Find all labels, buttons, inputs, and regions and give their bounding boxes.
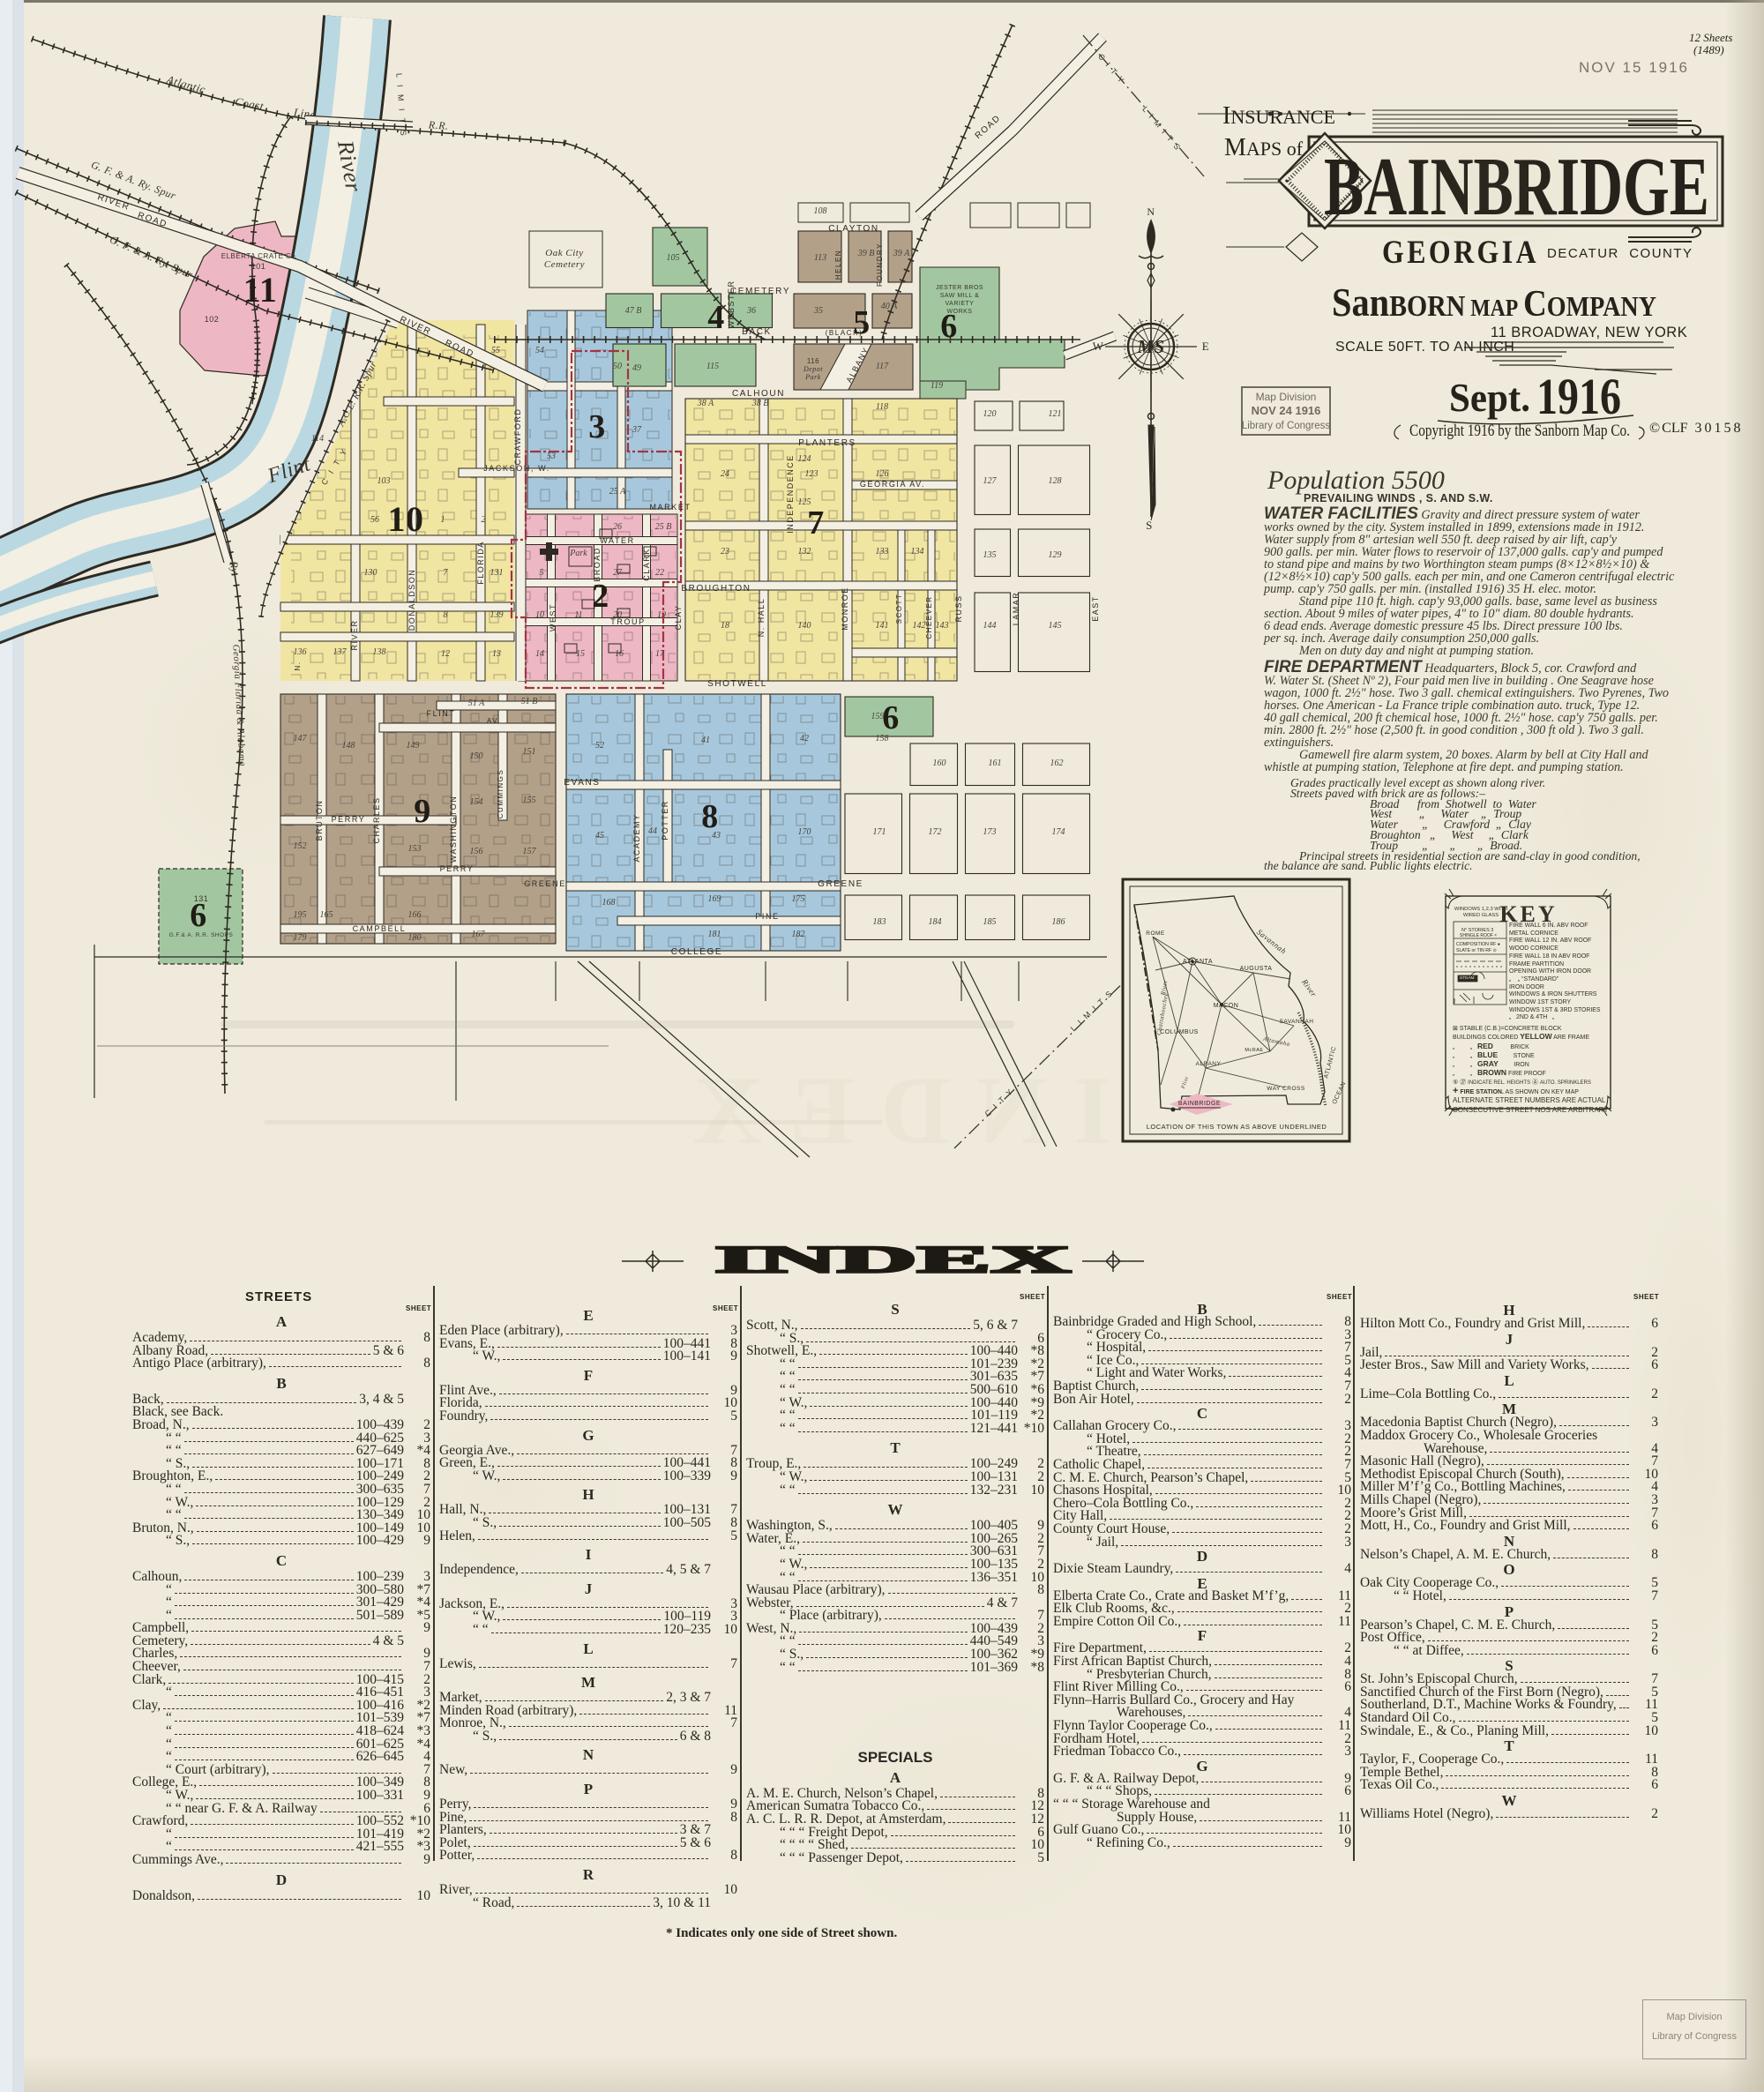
svg-text:7: 7 (807, 504, 825, 542)
svg-text:WAY CROSS: WAY CROSS (1267, 1086, 1305, 1092)
svg-text:185: 185 (983, 917, 997, 927)
svg-text:Library of Congress: Library of Congress (1242, 421, 1331, 431)
svg-text:26: 26 (613, 522, 622, 532)
svg-text:173: 173 (983, 827, 997, 837)
svg-text:27: 27 (613, 568, 623, 578)
svg-text:10: 10 (388, 499, 424, 539)
svg-text:149: 149 (407, 741, 420, 751)
svg-text:Copyright 1916 by the Sanborn: Copyright 1916 by the Sanborn Map Co. (1409, 422, 1630, 440)
svg-text:180: 180 (408, 933, 422, 943)
svg-text:135: 135 (983, 550, 997, 560)
svg-text:155: 155 (523, 796, 536, 805)
svg-text:138: 138 (373, 647, 386, 657)
svg-text:23: 23 (721, 547, 729, 557)
svg-text:MONROE: MONROE (841, 587, 849, 631)
svg-text:CRAWFORD: CRAWFORD (513, 408, 522, 466)
svg-text:VARIETY: VARIETY (946, 301, 975, 307)
svg-text:175: 175 (792, 894, 805, 904)
svg-text:2: 2 (592, 578, 609, 615)
svg-text:MAPS of: MAPS of (1224, 134, 1304, 161)
svg-text:PERRY: PERRY (440, 864, 475, 873)
svg-text:116: 116 (807, 357, 819, 365)
svg-text:C I T Y: C I T Y (1096, 52, 1126, 86)
svg-text:24: 24 (721, 469, 729, 479)
svg-text:5: 5 (853, 304, 871, 341)
svg-text:118: 118 (876, 402, 888, 412)
svg-text:102: 102 (205, 315, 220, 324)
svg-text:131: 131 (490, 568, 504, 578)
svg-text:105: 105 (667, 253, 680, 263)
svg-text:25 A: 25 A (609, 487, 626, 497)
svg-text:Depot: Depot (803, 365, 823, 373)
svg-text:166: 166 (408, 910, 422, 920)
svg-text:123: 123 (805, 469, 818, 479)
svg-text:Cemetery: Cemetery (544, 259, 585, 270)
svg-text:11: 11 (243, 270, 278, 310)
svg-text:SHOTWELL: SHOTWELL (707, 679, 767, 689)
svg-text:37: 37 (632, 425, 642, 435)
svg-text:127: 127 (983, 476, 998, 486)
svg-text:15: 15 (576, 649, 585, 659)
svg-text:GREENE: GREENE (818, 879, 863, 889)
svg-text:EVANS: EVANS (564, 778, 600, 788)
svg-text:133: 133 (876, 547, 889, 557)
svg-text:MARKET: MARKET (649, 503, 691, 512)
svg-text:13: 13 (492, 649, 501, 659)
svg-text:6: 6 (940, 308, 958, 345)
svg-text:INSURANCE: INSURANCE (1222, 102, 1335, 130)
svg-text:113: 113 (814, 253, 826, 263)
svg-text:MACON: MACON (1214, 1003, 1239, 1009)
svg-text:143: 143 (936, 621, 949, 631)
svg-text:56: 56 (370, 515, 379, 525)
svg-text:CLAYTON: CLAYTON (828, 224, 879, 234)
svg-text:ELBERTA CRATE Co: ELBERTA CRATE Co (221, 252, 296, 260)
svg-text:156: 156 (470, 847, 483, 856)
svg-text:6: 6 (190, 897, 207, 934)
svg-text:171: 171 (873, 827, 886, 837)
svg-text:183: 183 (873, 917, 886, 927)
svg-text:141: 141 (876, 621, 889, 631)
svg-text:SAVANNAH: SAVANNAH (1280, 1019, 1314, 1025)
svg-text:WEBSTER: WEBSTER (727, 280, 736, 328)
svg-text:Atlantic: Atlantic (165, 72, 208, 96)
svg-text:Park: Park (569, 549, 587, 558)
svg-text:CEMETERY: CEMETERY (730, 287, 790, 296)
svg-text:168: 168 (602, 898, 616, 908)
svg-text:W: W (1093, 340, 1104, 353)
svg-text:POTTER: POTTER (661, 800, 669, 841)
svg-text:CHEEVER: CHEEVER (925, 595, 933, 639)
svg-text:159: 159 (871, 712, 885, 721)
svg-text:54: 54 (535, 346, 544, 355)
svg-text:130: 130 (364, 568, 377, 578)
svg-text:124: 124 (798, 454, 811, 464)
svg-text:154: 154 (470, 797, 483, 807)
svg-text:103: 103 (377, 476, 391, 486)
svg-text:174: 174 (1052, 827, 1065, 837)
svg-text:CUMMINGS: CUMMINGS (497, 769, 505, 818)
svg-text:44: 44 (648, 826, 657, 836)
svg-text:Map Division: Map Division (1256, 391, 1317, 403)
svg-text:35: 35 (813, 306, 823, 316)
svg-text:169: 169 (708, 894, 721, 904)
svg-text:COLLEGE: COLLEGE (671, 947, 722, 957)
svg-text:144: 144 (983, 621, 997, 631)
svg-text:20: 20 (613, 610, 622, 620)
svg-text:G. F. & A. Ry. Spur: G. F. & A. Ry. Spur (108, 233, 195, 280)
svg-text:167: 167 (472, 930, 486, 939)
svg-text:PINE: PINE (755, 912, 779, 921)
svg-text:153: 153 (408, 844, 422, 854)
svg-text:N: N (1147, 205, 1155, 218)
svg-text:114: 114 (311, 434, 324, 444)
svg-text:157: 157 (523, 847, 537, 856)
svg-text:FLINT: FLINT (426, 709, 455, 718)
svg-text:50: 50 (613, 362, 622, 371)
svg-text:BACK: BACK (742, 327, 772, 337)
svg-text:8: 8 (701, 798, 719, 835)
svg-text:162: 162 (1050, 758, 1064, 768)
svg-text:139: 139 (490, 610, 504, 620)
svg-text:COLUMBUS: COLUMBUS (1160, 1029, 1199, 1035)
svg-text:151: 151 (523, 747, 536, 757)
svg-text:140: 140 (798, 621, 811, 631)
svg-text:SCOTT: SCOTT (895, 594, 903, 624)
svg-text:MS: MS (1136, 336, 1164, 357)
svg-text:SLATE or TIN RF ⊙: SLATE or TIN RF ⊙ (1456, 948, 1497, 953)
svg-text:1916: 1916 (1536, 368, 1621, 425)
svg-text:18: 18 (721, 621, 729, 631)
svg-text:JESTER BROS: JESTER BROS (936, 285, 983, 291)
svg-text:GREENE: GREENE (524, 879, 566, 888)
svg-text:ATLANTA: ATLANTA (1183, 959, 1213, 965)
svg-text:14: 14 (535, 649, 544, 659)
svg-text:HELEN: HELEN (834, 250, 842, 280)
svg-text:36: 36 (746, 306, 756, 316)
svg-text:BROUGHTON: BROUGHTON (681, 584, 751, 594)
svg-text:170: 170 (798, 827, 811, 837)
svg-text:CLARK: CLARK (642, 548, 651, 581)
svg-text:GEORGIA AV.: GEORGIA AV. (860, 480, 925, 489)
svg-text:PLANTERS: PLANTERS (798, 438, 856, 448)
svg-text:195: 195 (294, 910, 307, 920)
svg-text:BAINBRIDGE: BAINBRIDGE (1178, 1101, 1221, 1107)
svg-text:LOCATION OF THIS TOWN AS ABOVE: LOCATION OF THIS TOWN AS ABOVE UNDERLINE… (1147, 1123, 1327, 1131)
svg-text:ROME: ROME (1146, 930, 1165, 937)
svg-text:6: 6 (882, 699, 900, 736)
svg-text:186: 186 (1052, 917, 1065, 927)
svg-text:CAMPBELL: CAMPBELL (353, 924, 407, 933)
svg-text:WEST: WEST (549, 603, 557, 631)
svg-text:10: 10 (535, 610, 544, 620)
svg-text:8: 8 (444, 610, 448, 620)
svg-text:Sept.: Sept. (1449, 376, 1530, 420)
svg-text:51 A: 51 A (468, 699, 485, 708)
svg-text:132: 132 (798, 547, 811, 557)
svg-text:172: 172 (929, 827, 942, 837)
svg-text:LAMAR: LAMAR (1012, 592, 1020, 626)
svg-text:121: 121 (1049, 409, 1062, 419)
svg-text:RUSS: RUSS (954, 594, 963, 622)
svg-text:CHARLES: CHARLES (372, 796, 381, 843)
svg-text:COMPOSITION RF ●: COMPOSITION RF ● (1456, 942, 1500, 947)
svg-text:179: 179 (294, 933, 307, 943)
svg-text:39 A: 39 A (893, 249, 910, 258)
svg-text:DONALDSON: DONALDSON (407, 569, 416, 631)
svg-text:AUGUSTA: AUGUSTA (1240, 966, 1273, 972)
svg-text:1: 1 (441, 515, 445, 525)
svg-text:9: 9 (414, 793, 431, 830)
svg-text:16: 16 (615, 649, 624, 659)
svg-text:R.R.: R.R. (427, 118, 449, 132)
svg-text:145: 145 (1049, 621, 1062, 631)
svg-text:126: 126 (876, 469, 889, 479)
svg-text:51 B: 51 B (521, 697, 538, 706)
svg-text:38 A: 38 A (697, 399, 714, 408)
svg-text:Oak City: Oak City (545, 248, 583, 258)
svg-text:129: 129 (1049, 550, 1062, 560)
svg-text:128: 128 (1049, 476, 1062, 486)
svg-text:53: 53 (547, 452, 556, 461)
svg-text:160: 160 (933, 758, 946, 768)
svg-text:182: 182 (792, 930, 805, 939)
svg-text:43: 43 (712, 831, 721, 841)
svg-text:45: 45 (595, 831, 604, 841)
svg-text:STEAM: STEAM (1460, 975, 1475, 981)
svg-text:Ry.: Ry. (228, 560, 241, 576)
svg-text:142: 142 (913, 621, 926, 631)
svg-text:SanBORN MAP COMPANY: SanBORN MAP COMPANY (1332, 280, 1656, 325)
svg-text:(1489): (1489) (1693, 43, 1724, 56)
svg-text:184: 184 (929, 917, 942, 927)
svg-text:115: 115 (706, 362, 719, 371)
svg-text:108: 108 (814, 206, 827, 216)
svg-text:181: 181 (708, 930, 721, 939)
svg-text:38 B: 38 B (751, 399, 769, 408)
svg-text:55: 55 (491, 346, 500, 355)
svg-text:ACADEMY: ACADEMY (632, 813, 641, 862)
svg-text:12: 12 (441, 649, 450, 659)
svg-text:2: 2 (482, 515, 486, 525)
svg-text:N. HALL: N. HALL (757, 598, 766, 638)
svg-text:SHINGLE ROOF ×: SHINGLE ROOF × (1460, 933, 1497, 938)
svg-text:42: 42 (800, 734, 809, 743)
svg-text:Coast: Coast (234, 94, 265, 112)
svg-text:WASHINGTON: WASHINGTON (449, 796, 458, 863)
svg-text:150: 150 (470, 751, 483, 761)
svg-text:McRAE: McRAE (1245, 1048, 1263, 1053)
svg-text:5: 5 (540, 568, 544, 578)
svg-text:120: 120 (983, 409, 997, 419)
svg-text:165: 165 (320, 910, 333, 920)
svg-text:11: 11 (574, 610, 582, 620)
svg-text:WATER: WATER (600, 536, 635, 545)
svg-text:52: 52 (595, 741, 604, 751)
svg-text:NOV 24 1916: NOV 24 1916 (1252, 404, 1321, 417)
svg-text:FOUNDRY: FOUNDRY (876, 243, 884, 287)
svg-text:AV.: AV. (487, 717, 501, 725)
svg-text:FLORIDA: FLORIDA (476, 541, 485, 585)
svg-text:39 B: 39 B (857, 249, 875, 258)
svg-text:11 BROADWAY, NEW YORK: 11 BROADWAY, NEW YORK (1491, 325, 1687, 340)
svg-text:EAST: EAST (1091, 595, 1100, 622)
svg-text:25 B: 25 B (655, 522, 672, 532)
svg-text:INDEX: INDEX (714, 1238, 1072, 1281)
svg-text:47 B: 47 B (625, 306, 642, 316)
svg-text:119: 119 (931, 381, 943, 391)
svg-text:BROAD: BROAD (593, 547, 602, 582)
svg-text:41: 41 (701, 736, 710, 745)
svg-text:ALBANY: ALBANY (1196, 1061, 1222, 1067)
svg-text:134: 134 (911, 547, 924, 557)
svg-text:CALHOUN: CALHOUN (732, 389, 785, 399)
svg-text:117: 117 (876, 362, 889, 371)
svg-text:158: 158 (876, 734, 889, 743)
svg-text:L I M I T S: L I M I T S (1069, 988, 1115, 1033)
svg-text:SAW MILL &: SAW MILL & (940, 293, 980, 299)
svg-text:NOV 15 1916: NOV 15 1916 (1579, 59, 1689, 76)
svg-text:161: 161 (989, 758, 1002, 768)
svg-text:125: 125 (798, 497, 811, 507)
svg-text:19: 19 (657, 610, 666, 620)
svg-text:3: 3 (588, 408, 606, 445)
svg-text:17: 17 (655, 649, 665, 659)
svg-text:CLAY: CLAY (674, 605, 683, 631)
svg-text:12 Sheets: 12 Sheets (1689, 31, 1732, 44)
svg-text:4: 4 (707, 299, 725, 336)
svg-text:40 A: 40 A (881, 302, 898, 311)
svg-text:©CLF30158: ©CLF30158 (1649, 421, 1744, 436)
svg-text:49: 49 (632, 363, 641, 373)
svg-text:S: S (1146, 519, 1153, 532)
svg-text:Park: Park (804, 373, 821, 381)
svg-text:INDEPENDENCE: INDEPENDENCE (786, 454, 795, 534)
svg-text:22: 22 (655, 568, 664, 578)
